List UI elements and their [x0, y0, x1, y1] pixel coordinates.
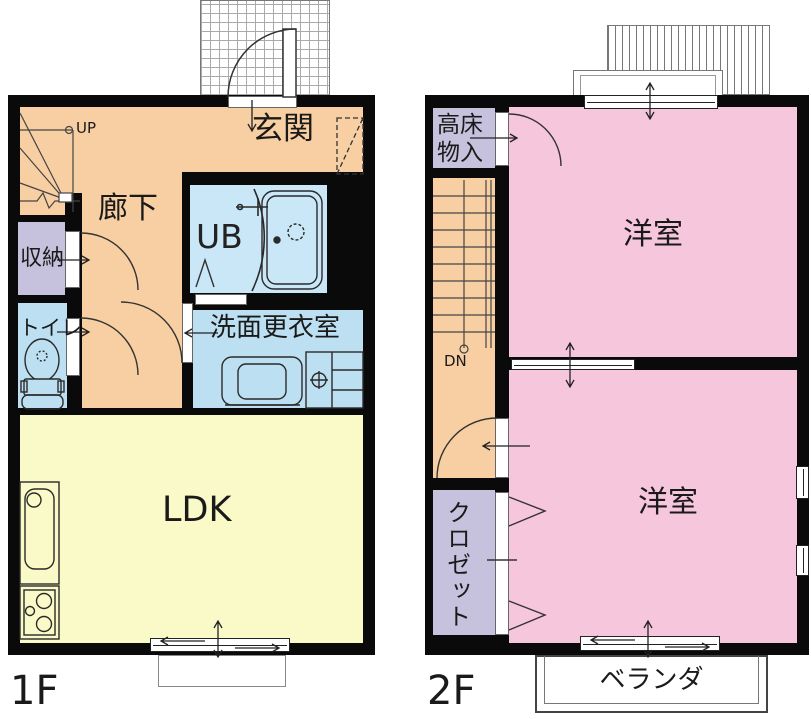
label-ldk: LDK: [162, 490, 231, 530]
label-closet: クロゼット: [442, 500, 470, 632]
label-dn: DN: [444, 353, 467, 370]
roof-eave-inner: [580, 75, 716, 95]
label-floor-1f: 1F: [10, 668, 58, 714]
room-2f-stair-hall: [433, 178, 495, 478]
ldk-terrace-step: [158, 655, 286, 687]
label-takayuka-line1: 高床: [437, 112, 483, 138]
entrance-door-opening: [228, 96, 297, 108]
label-takayuka-line2: 物入: [437, 140, 483, 166]
label-yoshitsu-lower: 洋室: [638, 486, 698, 521]
label-toilet: トイレ: [19, 316, 82, 340]
label-floor-2f: 2F: [427, 668, 475, 714]
rooms-sliding-door: [511, 359, 635, 370]
yoshitsu-side-window-2: [796, 545, 809, 576]
floor-plan: 玄関 廊下 収納 トイレ UB 洗面更衣室 LDK UP 1F 高床物入 DN …: [0, 0, 811, 719]
yoshitsu-upper-window: [584, 95, 718, 109]
label-veranda: ベランダ: [535, 666, 768, 696]
shuno-door-opening: [65, 231, 80, 288]
label-shuno: 収納: [20, 246, 64, 271]
label-senmen: 洗面更衣室: [210, 314, 340, 344]
label-up: UP: [76, 120, 96, 137]
yoshitsu-side-window-1: [796, 466, 809, 499]
ldk-window: [150, 638, 290, 652]
roof-eave: [573, 70, 723, 96]
label-takayuka: 高床物入: [437, 112, 483, 167]
takayuka-door-opening: [495, 112, 509, 166]
wall-stub-stairs: [65, 193, 82, 215]
washroom-door-opening: [182, 303, 193, 363]
label-genkan: 玄関: [252, 112, 314, 148]
label-rouka: 廊下: [98, 192, 158, 227]
label-yoshitsu-upper: 洋室: [623, 218, 683, 253]
wall-ldk-top: [20, 408, 363, 415]
hall-door-opening: [495, 418, 509, 478]
entrance-porch-hatch: [200, 0, 330, 96]
ub-door-opening: [195, 294, 247, 305]
label-ub: UB: [196, 218, 243, 256]
yoshitsu-lower-window: [580, 636, 720, 651]
closet-door-opening: [495, 492, 509, 635]
